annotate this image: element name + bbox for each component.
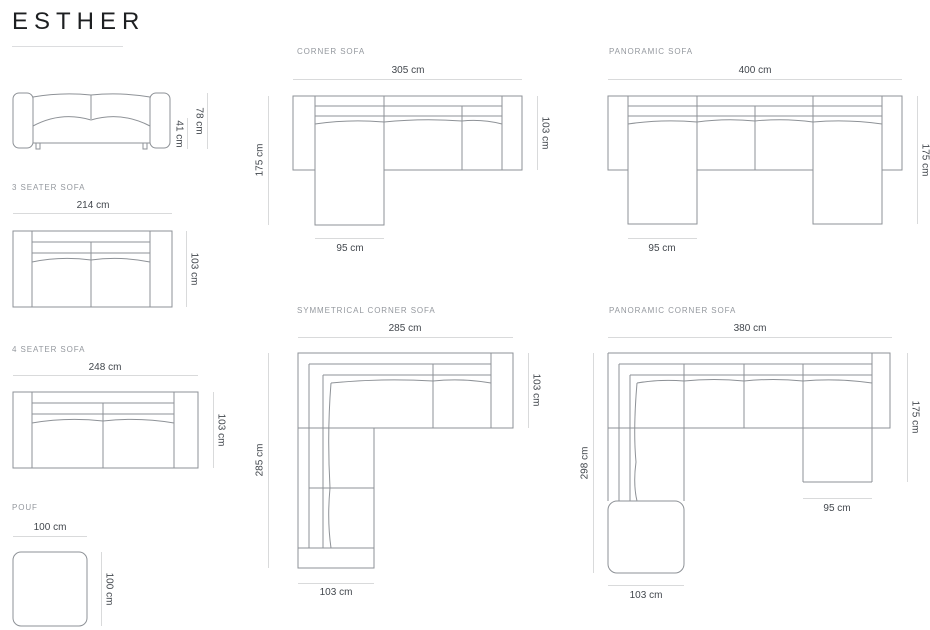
three-seater-drawing <box>13 231 172 307</box>
dim-pancorner-width: 380 cm <box>734 323 767 334</box>
dim-panoramic-width: 400 cm <box>739 65 772 76</box>
dim-corner-chaise-width: 95 cm <box>336 243 363 254</box>
dim-corner-length-left: 175 cm <box>255 144 266 177</box>
dim-symcorner-bottom-width: 103 cm <box>320 587 353 598</box>
corner-sofa-drawing <box>293 96 522 225</box>
dim-pancorner-depth-right: 175 cm <box>910 401 921 434</box>
section-label-panoramic-corner: PANORAMIC CORNER SOFA <box>609 306 736 315</box>
dim-panoramic-chaise-width: 95 cm <box>648 243 675 254</box>
dim-4seater-width: 248 cm <box>89 362 122 373</box>
dim-pancorner-bottom-width: 103 cm <box>630 590 663 601</box>
dim-front-height: 78 cm <box>194 107 205 134</box>
dim-symcorner-length-left: 285 cm <box>255 444 266 477</box>
dim-pouf-depth: 100 cm <box>104 573 115 606</box>
section-label-3-seater: 3 SEATER SOFA <box>12 183 85 192</box>
dimension-sheet: ESTHER 3 SEATER SOFA 4 SEATER SOFA POUF … <box>0 0 930 630</box>
section-label-panoramic-sofa: PANORAMIC SOFA <box>609 47 693 56</box>
section-label-pouf: POUF <box>12 503 38 512</box>
sofa-outlines <box>13 93 902 626</box>
dim-pancorner-chaise-width: 95 cm <box>823 503 850 514</box>
section-label-symmetrical-corner: SYMMETRICAL CORNER SOFA <box>297 306 436 315</box>
section-label-4-seater: 4 SEATER SOFA <box>12 345 85 354</box>
panoramic-corner-drawing <box>608 353 890 573</box>
dimension-drawings <box>0 0 930 630</box>
section-label-corner-sofa: CORNER SOFA <box>297 47 365 56</box>
dim-symcorner-width: 285 cm <box>389 323 422 334</box>
dim-symcorner-depth-right: 103 cm <box>531 374 542 407</box>
dim-front-seat-height: 41 cm <box>174 120 185 147</box>
dim-3seater-depth: 103 cm <box>189 253 200 286</box>
pouf-drawing <box>13 552 87 626</box>
dim-pouf-width: 100 cm <box>34 522 67 533</box>
front-view-drawing <box>13 93 170 149</box>
dim-4seater-depth: 103 cm <box>216 414 227 447</box>
symmetrical-corner-drawing <box>298 353 513 568</box>
dim-pancorner-length-left: 298 cm <box>580 447 591 480</box>
dim-panoramic-length-right: 175 cm <box>920 144 930 177</box>
brand-title: ESTHER <box>12 8 145 36</box>
panoramic-sofa-drawing <box>608 96 902 224</box>
four-seater-drawing <box>13 392 198 468</box>
brand-underline <box>12 46 123 47</box>
dim-3seater-width: 214 cm <box>77 200 110 211</box>
dim-corner-depth-right: 103 cm <box>540 117 551 150</box>
dim-corner-width: 305 cm <box>392 65 425 76</box>
